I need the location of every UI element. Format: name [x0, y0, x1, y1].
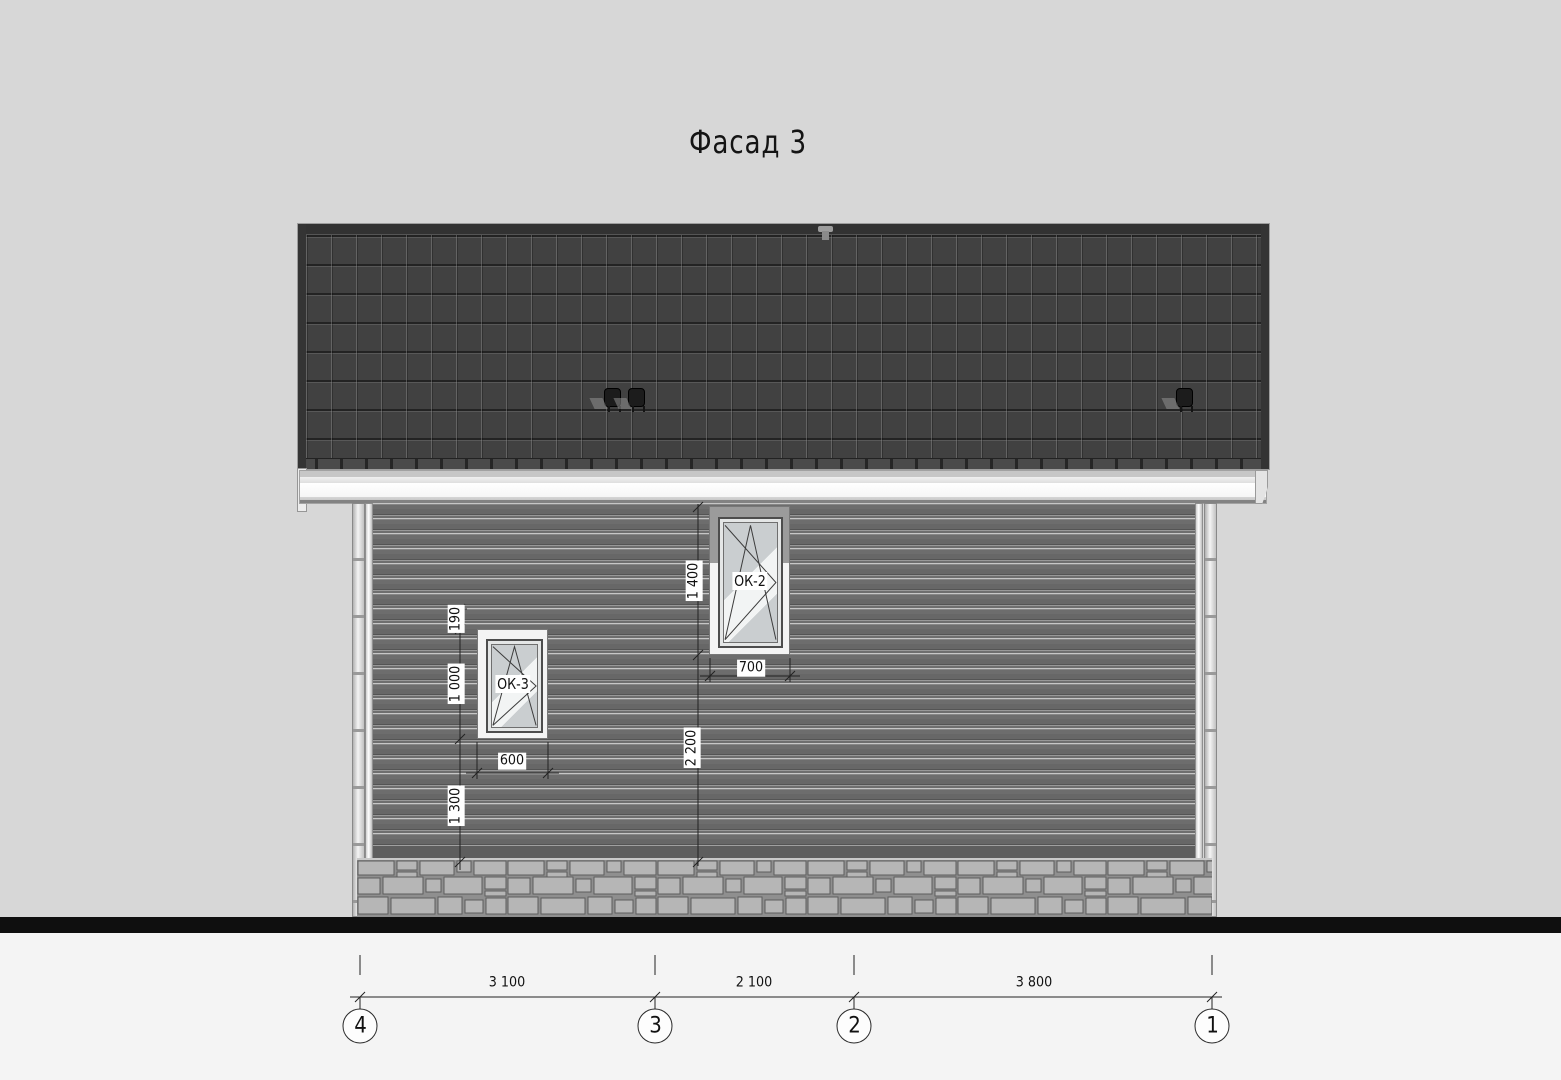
downspout-right: [1204, 503, 1217, 917]
dim-span-2-1: 3 800: [1014, 975, 1054, 992]
dim-ok3-height: 1 000: [448, 664, 465, 704]
window-ok2-tag: ОК-2: [732, 572, 767, 590]
dim-ok2-below: 2 200: [684, 728, 701, 768]
axis-label-4: 4: [354, 1014, 367, 1039]
dim-ok3-below: 1 300: [448, 786, 465, 826]
axis-label-2: 2: [848, 1014, 861, 1039]
axis-bubble-3: 3: [638, 1009, 673, 1044]
facade-title: Фасад 3: [689, 123, 807, 161]
axis-label-1: 1: [1206, 1014, 1219, 1039]
downspout-left: [352, 503, 365, 917]
axis-bubble-4: 4: [343, 1009, 378, 1044]
stone-pattern: [357, 860, 1212, 917]
dim-ok2-height: 1 400: [686, 561, 703, 601]
roof-eave-tile-row: [306, 458, 1261, 469]
foundation-masonry: [357, 858, 1212, 917]
corner-board-left: [365, 503, 373, 860]
dim-ok3-above: 190: [448, 605, 465, 633]
ridge-vent-base: [822, 231, 829, 240]
dim-ok2-width: 700: [737, 660, 765, 677]
dim-span-3-2: 2 100: [734, 975, 774, 992]
dim-ok3-width: 600: [498, 753, 526, 770]
eaves-gutter: [299, 470, 1267, 504]
roof: [297, 223, 1270, 470]
ground-line: [0, 917, 1561, 933]
axis-bubble-1: 1: [1195, 1009, 1230, 1044]
below-ground-area: [0, 933, 1561, 1080]
axis-label-3: 3: [649, 1014, 662, 1039]
window-ok3: ОК-3: [477, 629, 548, 739]
window-ok3-tag: ОК-3: [495, 675, 530, 693]
roof-vent-icon: [628, 388, 645, 407]
roof-vent-icon: [1176, 388, 1193, 407]
window-ok2: ОК-2: [709, 506, 790, 655]
roof-tile-pattern: [306, 235, 1261, 459]
corner-board-right: [1195, 503, 1203, 860]
axis-bubble-2: 2: [837, 1009, 872, 1044]
dim-span-4-3: 3 100: [487, 975, 527, 992]
elevation-drawing-sheet: Фасад 3: [0, 0, 1561, 1080]
